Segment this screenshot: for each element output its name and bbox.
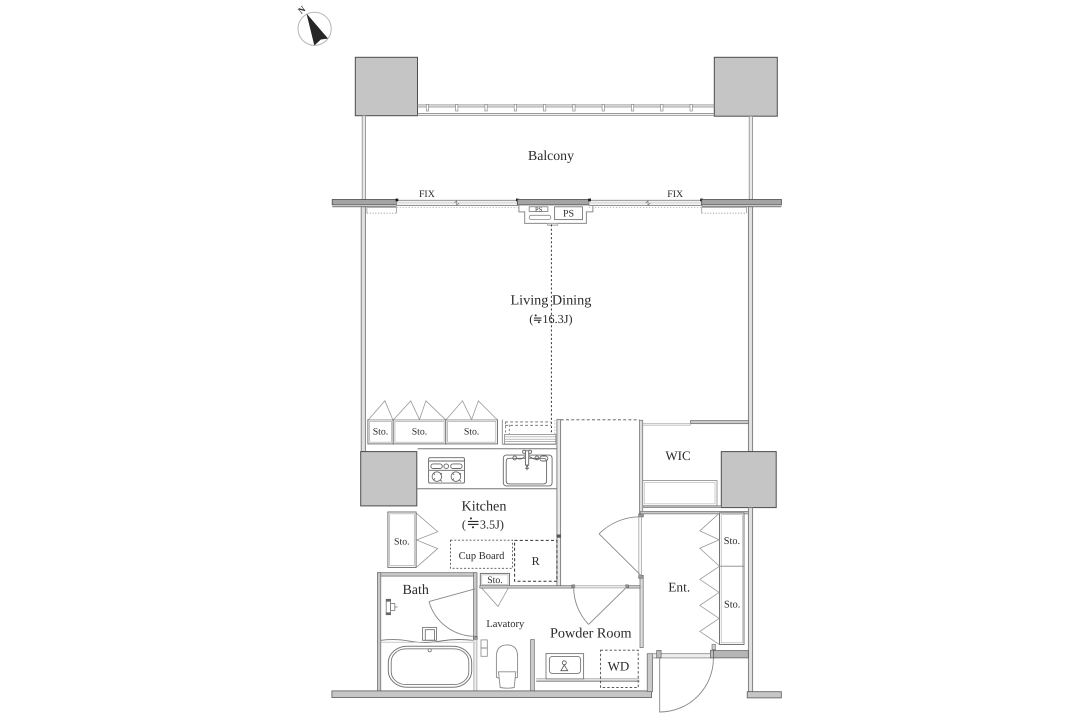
svg-text:R: R [532, 554, 540, 568]
svg-text:WD: WD [608, 659, 630, 674]
svg-text:Powder Room: Powder Room [550, 626, 632, 642]
svg-text:PS: PS [535, 207, 543, 214]
svg-text:WIC: WIC [665, 448, 690, 463]
svg-text:Sto.: Sto. [373, 427, 389, 438]
svg-text:Lavatory: Lavatory [486, 619, 525, 630]
svg-text:Cup Board: Cup Board [459, 551, 506, 562]
svg-text:Ent.: Ent. [668, 580, 690, 595]
svg-text:Sto.: Sto. [464, 427, 480, 438]
svg-text:FIX: FIX [419, 189, 435, 200]
svg-text:PS: PS [563, 209, 574, 220]
svg-text:FIX: FIX [667, 189, 683, 200]
svg-text:Sto.: Sto. [487, 575, 503, 586]
svg-text:Sto.: Sto. [412, 427, 428, 438]
svg-text:Balcony: Balcony [528, 148, 574, 163]
svg-text:Sto.: Sto. [724, 599, 740, 610]
svg-text:Bath: Bath [402, 583, 428, 598]
svg-text:Sto.: Sto. [394, 536, 410, 547]
svg-text:Kitchen: Kitchen [462, 499, 507, 515]
svg-text:Sto.: Sto. [724, 536, 740, 547]
